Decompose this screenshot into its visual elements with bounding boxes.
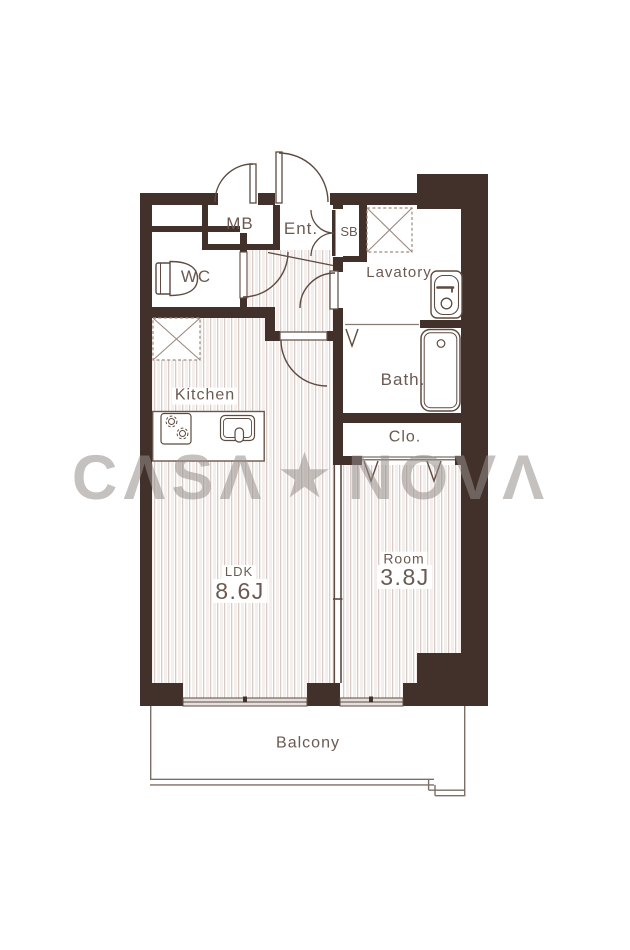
ldk-label: LDK — [222, 565, 256, 579]
watermark-left: CΛSΛ — [72, 443, 268, 513]
floorplan: MB Ent. SB WC Lavatory Kitchen Bath. Clo… — [0, 0, 630, 950]
sliding-window-icon — [183, 697, 403, 707]
entrance-label: Ent. — [284, 220, 318, 238]
hall-floor — [247, 250, 333, 331]
bath-label: Bath. — [381, 371, 426, 389]
bathtub-icon — [421, 330, 460, 412]
watermark: CΛSΛ★NOVΛ — [72, 442, 550, 514]
balcony-label: Balcony — [276, 736, 340, 753]
kitchen-label: Kitchen — [172, 388, 238, 405]
mb-label: MB — [226, 215, 254, 233]
wc-label: WC — [181, 268, 211, 286]
fridge-space-icon — [153, 318, 200, 360]
mb-door-swing — [215, 164, 258, 205]
watermark-right: NOVΛ — [348, 443, 551, 513]
entrance-door-swing — [275, 152, 330, 205]
kitchen-sink-icon — [221, 416, 255, 443]
ldk-size: 8.6J — [212, 579, 267, 603]
lavatory-label: Lavatory — [366, 265, 432, 281]
bath-door — [343, 320, 420, 328]
stove-icon — [161, 414, 191, 445]
washbasin-icon — [431, 271, 462, 318]
washer-space-icon — [367, 208, 412, 252]
room-size: 3.8J — [377, 565, 432, 589]
star-icon: ★ — [279, 444, 335, 507]
shoebox-label: SB — [340, 225, 357, 239]
